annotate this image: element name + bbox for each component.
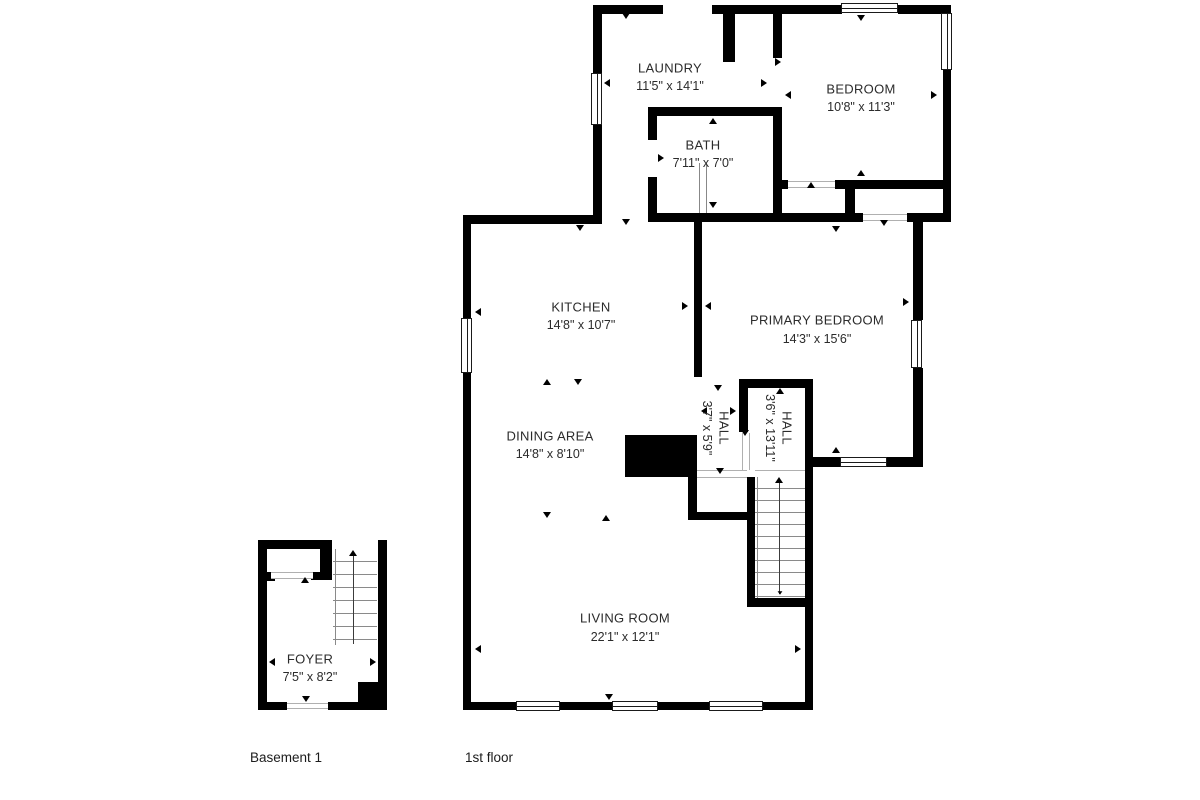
measure-marker-icon: [269, 658, 275, 666]
door-marker-icon: [301, 577, 309, 583]
room-dims-dining: 14'8" x 8'10": [516, 447, 585, 461]
wall: [560, 702, 613, 710]
room-label-laundry: LAUNDRY: [638, 61, 702, 76]
wall: [723, 5, 735, 62]
room-label-living: LIVING ROOM: [580, 611, 670, 626]
room-dims-hall-1: 3'7" x 5'9": [700, 401, 714, 456]
measure-marker-icon: [682, 302, 688, 310]
measure-marker-icon: [605, 694, 613, 700]
door-marker-icon: [302, 696, 310, 702]
measure-marker-icon: [602, 515, 610, 521]
wall: [773, 5, 782, 58]
window-symbol: [461, 318, 472, 373]
door-marker-icon: [775, 58, 781, 66]
stair-edge-line: [757, 477, 758, 598]
door-marker-icon: [776, 388, 784, 394]
stair-up-arrow-icon: [775, 477, 783, 483]
stair-edge-line: [335, 549, 336, 645]
wall: [739, 382, 748, 432]
room-label-hall-1: HALL: [717, 411, 732, 445]
measure-marker-icon: [857, 15, 865, 21]
stair-down-tick-icon: [778, 591, 783, 595]
doorway-opening: [287, 703, 328, 709]
measure-marker-icon: [931, 91, 937, 99]
shower-partition: [699, 163, 707, 213]
window-symbol: [612, 701, 658, 711]
wall: [648, 107, 782, 116]
wall: [943, 70, 951, 218]
measure-marker-icon: [832, 226, 840, 232]
stair-direction-line: [779, 482, 780, 594]
wall: [913, 368, 923, 467]
measure-marker-icon: [543, 379, 551, 385]
room-dims-foyer: 7'5" x 8'2": [283, 670, 338, 684]
room-label-dining: DINING AREA: [506, 429, 593, 444]
window-symbol: [841, 3, 898, 13]
measure-marker-icon: [709, 118, 717, 124]
wall: [913, 222, 923, 320]
window-symbol: [591, 73, 602, 125]
room-dims-bedroom: 10'8" x 11'3": [827, 100, 895, 114]
wall: [887, 457, 923, 467]
room-dims-bath: 7'11" x 7'0": [673, 156, 734, 170]
wall: [805, 457, 840, 467]
wall: [694, 213, 702, 377]
room-dims-hall-2: 3'6" x 13'11": [763, 394, 777, 462]
measure-marker-icon: [709, 202, 717, 208]
window-symbol: [709, 701, 763, 711]
wall: [739, 379, 813, 388]
wall: [805, 379, 813, 710]
window-symbol: [911, 320, 922, 368]
wall: [593, 125, 602, 217]
measure-marker-icon: [705, 302, 711, 310]
measure-marker-icon: [543, 512, 551, 518]
floor-caption-basement: Basement 1: [250, 750, 322, 765]
measure-marker-icon: [370, 658, 376, 666]
measure-marker-icon: [832, 447, 840, 453]
staircase-first-floor: [755, 477, 805, 598]
wall: [688, 512, 755, 520]
room-label-primary-bedroom: PRIMARY BEDROOM: [750, 313, 884, 328]
wall: [593, 5, 602, 73]
measure-marker-icon: [475, 308, 481, 316]
wall: [658, 702, 710, 710]
floor-caption-first: 1st floor: [465, 750, 513, 765]
wall: [320, 540, 332, 580]
wall: [648, 213, 863, 222]
door-marker-icon: [807, 182, 815, 188]
room-label-foyer: FOYER: [287, 652, 333, 667]
measure-marker-icon: [574, 379, 582, 385]
door-marker-icon: [880, 220, 888, 226]
door-marker-icon: [741, 430, 749, 436]
chimney-block: [625, 435, 697, 477]
wall: [463, 215, 471, 318]
measure-marker-icon: [576, 225, 584, 231]
wall: [907, 213, 951, 222]
wall: [648, 116, 657, 140]
stoop-block: [358, 682, 387, 707]
room-dims-laundry: 11'5" x 14'1": [636, 79, 704, 93]
window-symbol: [840, 457, 887, 467]
room-dims-living: 22'1" x 12'1": [591, 630, 660, 644]
measure-marker-icon: [604, 79, 610, 87]
window-symbol: [941, 13, 952, 70]
room-label-kitchen: KITCHEN: [551, 300, 610, 315]
floorplan-canvas: LAUNDRY 11'5" x 14'1" BEDROOM 10'8" x 11…: [0, 0, 1200, 800]
wall: [747, 598, 813, 607]
wall: [773, 180, 788, 189]
room-label-bedroom: BEDROOM: [826, 82, 895, 97]
stair-up-arrow-icon: [349, 550, 357, 556]
wall: [463, 215, 602, 224]
measure-marker-icon: [795, 645, 801, 653]
room-label-bath: BATH: [686, 138, 721, 153]
wall: [463, 373, 471, 710]
measure-marker-icon: [903, 298, 909, 306]
stair-direction-line: [353, 556, 354, 644]
measure-marker-icon: [785, 91, 791, 99]
door-marker-icon: [622, 219, 630, 225]
door-marker-icon: [714, 385, 722, 391]
room-dims-primary-bedroom: 14'3" x 15'6": [783, 332, 852, 346]
door-marker-icon: [622, 13, 630, 19]
measure-marker-icon: [475, 645, 481, 653]
room-dims-kitchen: 14'8" x 10'7": [547, 318, 616, 332]
measure-marker-icon: [857, 170, 865, 176]
measure-marker-icon: [761, 79, 767, 87]
wall: [258, 702, 287, 710]
room-label-hall-2: HALL: [780, 411, 795, 445]
wall: [648, 177, 657, 215]
wall: [258, 540, 267, 710]
window-symbol: [516, 701, 560, 711]
wall: [463, 702, 517, 710]
wall: [747, 477, 755, 607]
door-marker-icon: [658, 154, 664, 162]
staircase-basement: [333, 549, 377, 645]
doorway-opening: [742, 433, 750, 470]
door-marker-icon: [716, 468, 724, 474]
wall: [773, 107, 782, 213]
